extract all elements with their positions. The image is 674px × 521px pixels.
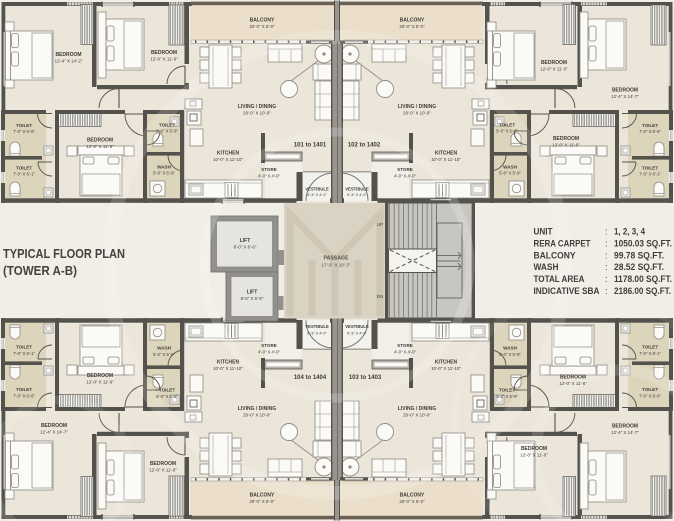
svg-text:BEDROOM: BEDROOM bbox=[553, 136, 579, 142]
svg-text:17'-9" X 10'-3": 17'-9" X 10'-3" bbox=[321, 263, 350, 268]
svg-text:20'-0" X 5'-0": 20'-0" X 5'-0" bbox=[399, 24, 425, 29]
svg-text:VESTIBULE: VESTIBULE bbox=[345, 324, 369, 329]
svg-text:TOILET: TOILET bbox=[159, 388, 175, 393]
svg-text:INDICATIVE SBA: INDICATIVE SBA bbox=[534, 286, 600, 296]
svg-text:KITCHEN: KITCHEN bbox=[217, 359, 240, 365]
svg-text:TOILET: TOILET bbox=[642, 345, 658, 350]
svg-text:STORE: STORE bbox=[397, 167, 413, 172]
svg-text:12'-0" X 11'-0": 12'-0" X 11'-0" bbox=[520, 453, 548, 458]
svg-text:BALCONY: BALCONY bbox=[250, 492, 275, 498]
svg-text:BALCONY: BALCONY bbox=[400, 492, 425, 498]
svg-text:TOILET: TOILET bbox=[499, 388, 515, 393]
svg-text:7'-0" X 6'-6": 7'-0" X 6'-6" bbox=[639, 394, 661, 399]
svg-text:4'-0" X 4'-0": 4'-0" X 4'-0" bbox=[258, 174, 280, 179]
svg-text:101 to 1401: 101 to 1401 bbox=[294, 143, 327, 149]
svg-text:TOILET: TOILET bbox=[16, 166, 32, 171]
svg-text:TOILET: TOILET bbox=[16, 387, 32, 392]
svg-text:5'-0" X 5'-9": 5'-0" X 5'-9" bbox=[496, 394, 518, 399]
svg-text:5'-0" X 5'-9": 5'-0" X 5'-9" bbox=[156, 394, 178, 399]
svg-text:TOILET: TOILET bbox=[16, 123, 32, 128]
svg-text:7'-0" X 6'-1": 7'-0" X 6'-1" bbox=[13, 172, 35, 177]
svg-text::: : bbox=[605, 274, 608, 284]
svg-text::: : bbox=[605, 227, 608, 237]
svg-text:WASH: WASH bbox=[157, 165, 171, 170]
svg-text:7'-0" X 6'-1": 7'-0" X 6'-1" bbox=[13, 351, 35, 356]
svg-text:12'-4" X 14'-7": 12'-4" X 14'-7" bbox=[611, 94, 639, 99]
svg-text:TOILET: TOILET bbox=[159, 123, 175, 128]
svg-text:12'-0" X 11'-0": 12'-0" X 11'-0" bbox=[150, 57, 178, 62]
svg-text:LIVING / DINING: LIVING / DINING bbox=[398, 406, 436, 412]
svg-text:5'-3" X 4'-0": 5'-3" X 4'-0" bbox=[347, 331, 367, 335]
svg-text:UP: UP bbox=[377, 222, 383, 227]
svg-text:1178.00 SQ.FT.: 1178.00 SQ.FT. bbox=[614, 274, 672, 284]
svg-text:5'-0" X 5'-9": 5'-0" X 5'-9" bbox=[156, 129, 178, 134]
svg-text:5'-0" X 5'-9": 5'-0" X 5'-9" bbox=[499, 171, 521, 176]
svg-text:TOILET: TOILET bbox=[642, 166, 658, 171]
svg-text::: : bbox=[605, 262, 608, 272]
svg-text:DN: DN bbox=[377, 294, 384, 299]
svg-text:BEDROOM: BEDROOM bbox=[87, 373, 113, 379]
svg-text::: : bbox=[605, 286, 608, 296]
svg-text:5'-0" X 5'-9": 5'-0" X 5'-9" bbox=[153, 352, 175, 357]
svg-text:12'-0" X 11'-6": 12'-0" X 11'-6" bbox=[86, 144, 114, 149]
svg-text:TOTAL AREA: TOTAL AREA bbox=[534, 274, 585, 284]
svg-text:10'-0" X 11'-10": 10'-0" X 11'-10" bbox=[213, 157, 243, 162]
svg-text:VESTIBULE: VESTIBULE bbox=[305, 187, 329, 192]
svg-text:VESTIBULE: VESTIBULE bbox=[305, 324, 329, 329]
svg-text:20'-0" X 10'-0": 20'-0" X 10'-0" bbox=[403, 111, 431, 116]
svg-text:103 to 1403: 103 to 1403 bbox=[349, 375, 382, 381]
svg-text:1, 2, 3, 4: 1, 2, 3, 4 bbox=[614, 227, 645, 237]
svg-text:BALCONY: BALCONY bbox=[250, 18, 275, 24]
svg-text:20'-0" X 10'-0": 20'-0" X 10'-0" bbox=[243, 412, 271, 417]
svg-text:WASH: WASH bbox=[503, 165, 517, 170]
svg-text:5'-0" X 5'-9": 5'-0" X 5'-9" bbox=[153, 171, 175, 176]
svg-text:BEDROOM: BEDROOM bbox=[41, 423, 67, 429]
svg-text:12'-0" X 11'-6": 12'-0" X 11'-6" bbox=[552, 143, 580, 148]
svg-text:WASH: WASH bbox=[534, 262, 559, 272]
svg-text:(TOWER A-B): (TOWER A-B) bbox=[3, 263, 77, 278]
svg-text:7'-0" X 6'-6": 7'-0" X 6'-6" bbox=[639, 129, 661, 134]
svg-text:RERA CARPET: RERA CARPET bbox=[534, 238, 591, 248]
svg-text:10'-0" X 11'-10": 10'-0" X 11'-10" bbox=[431, 157, 461, 162]
svg-text:20'-0" X 5'-0": 20'-0" X 5'-0" bbox=[249, 24, 275, 29]
svg-text:2186.00 SQ.FT.: 2186.00 SQ.FT. bbox=[614, 286, 671, 296]
svg-text:7'-0" X 6'-1": 7'-0" X 6'-1" bbox=[639, 172, 661, 177]
svg-text::: : bbox=[605, 238, 608, 248]
svg-text:4'-0" X 4'-0": 4'-0" X 4'-0" bbox=[394, 174, 416, 179]
svg-text:4'-0" X 4'-0": 4'-0" X 4'-0" bbox=[258, 349, 280, 354]
svg-text:12'-0" X 11'-0": 12'-0" X 11'-0" bbox=[149, 468, 177, 473]
svg-text:5'-3" X 4'-0": 5'-3" X 4'-0" bbox=[307, 331, 327, 335]
svg-text:12'-0" X 11'-0": 12'-0" X 11'-0" bbox=[540, 67, 568, 72]
svg-text:104 to 1404: 104 to 1404 bbox=[294, 375, 327, 381]
svg-text:BALCONY: BALCONY bbox=[400, 18, 425, 24]
svg-text:20'-0" X 10'-0": 20'-0" X 10'-0" bbox=[243, 111, 271, 116]
svg-text:VESTIBULE: VESTIBULE bbox=[345, 187, 369, 192]
svg-text::: : bbox=[605, 250, 608, 260]
svg-text:LIVING / DINING: LIVING / DINING bbox=[398, 104, 436, 110]
svg-text:BEDROOM: BEDROOM bbox=[521, 446, 547, 452]
svg-text:8'-0" X 6'-6": 8'-0" X 6'-6" bbox=[241, 296, 264, 301]
svg-text:WASH: WASH bbox=[503, 346, 517, 351]
svg-text:TOILET: TOILET bbox=[642, 387, 658, 392]
svg-text:STORE: STORE bbox=[261, 167, 277, 172]
svg-text:102 to 1402: 102 to 1402 bbox=[348, 143, 381, 149]
svg-text:BEDROOM: BEDROOM bbox=[55, 52, 81, 58]
svg-text:10'-0" X 11'-10": 10'-0" X 11'-10" bbox=[213, 366, 243, 371]
svg-text:LIVING / DINING: LIVING / DINING bbox=[238, 406, 276, 412]
svg-text:12'-4" X 14'-2": 12'-4" X 14'-2" bbox=[55, 59, 83, 64]
svg-text:12'-0" X 11'-6": 12'-0" X 11'-6" bbox=[559, 381, 587, 386]
svg-text:5'-3" X 4'-0": 5'-3" X 4'-0" bbox=[347, 193, 367, 197]
svg-text:12'-4" X 14'-7": 12'-4" X 14'-7" bbox=[611, 430, 639, 435]
svg-text:BEDROOM: BEDROOM bbox=[560, 375, 586, 381]
svg-text:LIFT: LIFT bbox=[240, 238, 251, 244]
svg-text:TOILET: TOILET bbox=[499, 123, 515, 128]
svg-text:BEDROOM: BEDROOM bbox=[87, 138, 113, 144]
svg-text:TYPICAL FLOOR PLAN: TYPICAL FLOOR PLAN bbox=[3, 246, 125, 261]
svg-text:UNIT: UNIT bbox=[534, 227, 553, 237]
svg-text:99.78 SQ.FT.: 99.78 SQ.FT. bbox=[614, 250, 664, 260]
svg-text:TOILET: TOILET bbox=[16, 345, 32, 350]
svg-text:5'-0" X 5'-9": 5'-0" X 5'-9" bbox=[496, 129, 518, 134]
svg-text:WASH: WASH bbox=[157, 346, 171, 351]
svg-text:LIFT: LIFT bbox=[247, 290, 258, 296]
svg-text:KITCHEN: KITCHEN bbox=[435, 359, 458, 365]
svg-text:5'-0" X 5'-9": 5'-0" X 5'-9" bbox=[499, 352, 521, 357]
svg-text:BEDROOM: BEDROOM bbox=[612, 88, 638, 94]
svg-text:4'-0" X 4'-0": 4'-0" X 4'-0" bbox=[394, 349, 416, 354]
svg-text:TOILET: TOILET bbox=[642, 123, 658, 128]
svg-text:8'-0" X 6'-6": 8'-0" X 6'-6" bbox=[234, 245, 257, 250]
svg-text:1050.03 SQ.FT.: 1050.03 SQ.FT. bbox=[614, 238, 672, 248]
svg-text:KITCHEN: KITCHEN bbox=[435, 151, 458, 157]
svg-text:20'-0" X 5'-0": 20'-0" X 5'-0" bbox=[249, 499, 275, 504]
svg-text:STORE: STORE bbox=[397, 343, 413, 348]
svg-text:12'-0" X 11'-6": 12'-0" X 11'-6" bbox=[86, 380, 114, 385]
svg-text:KITCHEN: KITCHEN bbox=[217, 151, 240, 157]
svg-text:7'-0" X 6'-1": 7'-0" X 6'-1" bbox=[639, 351, 661, 356]
svg-text:20'-0" X 10'-0": 20'-0" X 10'-0" bbox=[403, 412, 431, 417]
svg-text:5'-3" X 4'-0": 5'-3" X 4'-0" bbox=[307, 193, 327, 197]
svg-text:10'-0" X 11'-10": 10'-0" X 11'-10" bbox=[431, 366, 461, 371]
svg-text:BEDROOM: BEDROOM bbox=[150, 461, 176, 467]
svg-text:BEDROOM: BEDROOM bbox=[151, 50, 177, 56]
svg-text:12'-4" X 14'-7": 12'-4" X 14'-7" bbox=[40, 430, 68, 435]
svg-text:28.52 SQ.FT.: 28.52 SQ.FT. bbox=[614, 262, 664, 272]
svg-text:STORE: STORE bbox=[261, 343, 277, 348]
svg-text:PASSAGE: PASSAGE bbox=[324, 256, 350, 262]
svg-text:7'-0" X 6'-6": 7'-0" X 6'-6" bbox=[13, 129, 35, 134]
svg-text:LIVING / DINING: LIVING / DINING bbox=[238, 104, 276, 110]
svg-text:BEDROOM: BEDROOM bbox=[541, 60, 567, 66]
svg-text:7'-0" X 6'-6": 7'-0" X 6'-6" bbox=[13, 394, 35, 399]
svg-text:BALCONY: BALCONY bbox=[534, 250, 576, 260]
svg-text:20'-0" X 5'-0": 20'-0" X 5'-0" bbox=[399, 499, 425, 504]
svg-text:BEDROOM: BEDROOM bbox=[612, 424, 638, 430]
